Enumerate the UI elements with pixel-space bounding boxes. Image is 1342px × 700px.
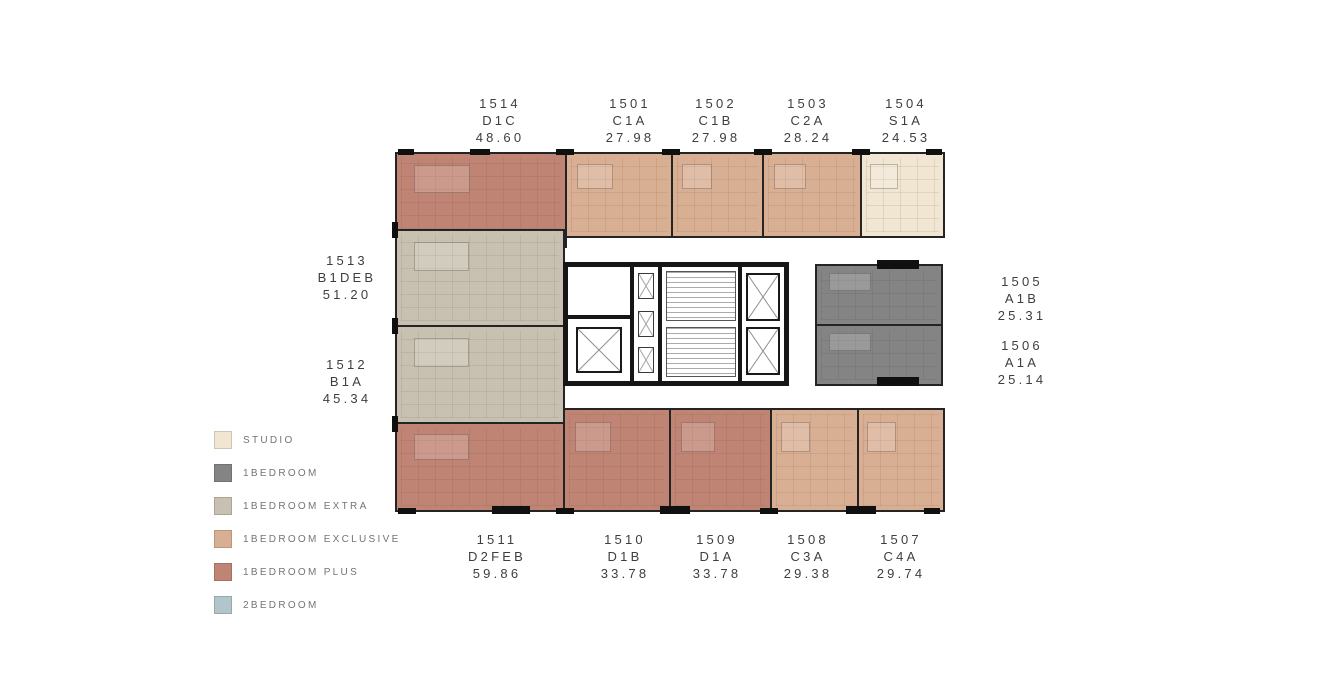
- legend-label: 1BEDROOM: [243, 468, 319, 479]
- stairwell-icon: [666, 271, 736, 321]
- wall-segment: [926, 149, 942, 155]
- unit-type-code: B1DEB: [292, 269, 402, 286]
- unit-type-code: C2A: [753, 112, 863, 129]
- unit-1509: [669, 408, 772, 512]
- unit-type-code: B1A: [292, 373, 402, 390]
- unit-1505: [815, 264, 943, 326]
- unit-type-code: A1B: [967, 290, 1077, 307]
- stairwell-icon: [666, 327, 736, 377]
- legend-item-studio: STUDIO: [214, 431, 401, 449]
- unit-1504: [860, 152, 945, 238]
- wall-segment: [877, 260, 919, 269]
- unit-label-1506: 1506 A1A 25.14: [967, 337, 1077, 388]
- unit-type-code: A1A: [967, 354, 1077, 371]
- unit-number: 1504: [851, 95, 961, 112]
- unit-1502: [671, 152, 764, 238]
- legend-swatch-1bedroom-exclusive: [214, 530, 232, 548]
- unit-type-code: C4A: [846, 548, 956, 565]
- wall-segment: [760, 508, 778, 514]
- unit-1503: [762, 152, 862, 238]
- elevator-shaft-icon: [576, 327, 622, 373]
- legend-label: STUDIO: [243, 435, 295, 446]
- unit-number: 1512: [292, 356, 402, 373]
- unit-label-1513: 1513 B1DEB 51.20: [292, 252, 402, 303]
- wall-segment: [556, 508, 574, 514]
- wall-segment: [852, 149, 870, 155]
- unit-number: 1506: [967, 337, 1077, 354]
- wall-segment: [392, 416, 398, 432]
- legend-swatch-1bedroom: [214, 464, 232, 482]
- unit-number: 1503: [753, 95, 863, 112]
- legend-item-1bedroom: 1BEDROOM: [214, 464, 401, 482]
- core-wall: [568, 315, 630, 319]
- unit-label-1504: 1504 S1A 24.53: [851, 95, 961, 146]
- unit-label-1507: 1507 C4A 29.74: [846, 531, 956, 582]
- wall-segment: [877, 377, 919, 386]
- unit-type-code: D1C: [445, 112, 555, 129]
- unit-area: 45.34: [292, 390, 402, 407]
- unit-area: 59.86: [442, 565, 552, 582]
- legend-item-2bedroom: 2BEDROOM: [214, 596, 401, 614]
- legend-label: 1BEDROOM EXCLUSIVE: [243, 534, 401, 545]
- unit-1512: [395, 325, 565, 424]
- wall-segment: [846, 506, 876, 514]
- service-shaft-icon: [638, 347, 654, 373]
- core-wall: [630, 267, 634, 381]
- unit-number: 1514: [445, 95, 555, 112]
- unit-number: 1507: [846, 531, 956, 548]
- unit-label-1511: 1511 D2FEB 59.86: [442, 531, 552, 582]
- unit-1510: [563, 408, 671, 512]
- legend-item-1bedroom-exclusive: 1BEDROOM EXCLUSIVE: [214, 530, 401, 548]
- legend-swatch-1bedroom-plus: [214, 563, 232, 581]
- core-wall: [658, 267, 662, 381]
- unit-area: 25.14: [967, 371, 1077, 388]
- unit-area: 29.74: [846, 565, 956, 582]
- unit-1511: [395, 422, 565, 512]
- building-core: [563, 262, 789, 386]
- unit-type-code: D2FEB: [442, 548, 552, 565]
- unit-label-1505: 1505 A1B 25.31: [967, 273, 1077, 324]
- legend-label: 1BEDROOM EXTRA: [243, 501, 369, 512]
- wall-segment: [392, 318, 398, 334]
- wall-segment: [660, 506, 690, 514]
- unit-label-1514: 1514 D1C 48.60: [445, 95, 555, 146]
- unit-1513: [395, 229, 565, 327]
- unit-area: 51.20: [292, 286, 402, 303]
- unit-type-legend: STUDIO 1BEDROOM 1BEDROOM EXTRA 1BEDROOM …: [214, 431, 401, 629]
- wall-segment: [492, 506, 530, 514]
- legend-item-1bedroom-extra: 1BEDROOM EXTRA: [214, 497, 401, 515]
- wall-segment: [924, 508, 940, 514]
- legend-item-1bedroom-plus: 1BEDROOM PLUS: [214, 563, 401, 581]
- service-shaft-icon: [638, 273, 654, 299]
- elevator-shaft-icon: [746, 273, 780, 321]
- unit-1508: [770, 408, 859, 512]
- wall-segment: [398, 149, 414, 155]
- floor-plan-page: 1514 D1C 48.60 1501 C1A 27.98 1502 C1B 2…: [0, 0, 1342, 700]
- service-shaft-icon: [638, 311, 654, 337]
- unit-number: 1511: [442, 531, 552, 548]
- unit-area: 25.31: [967, 307, 1077, 324]
- legend-label: 2BEDROOM: [243, 600, 319, 611]
- legend-swatch-1bedroom-extra: [214, 497, 232, 515]
- unit-1507: [857, 408, 945, 512]
- wall-segment: [392, 222, 398, 238]
- legend-swatch-2bedroom: [214, 596, 232, 614]
- wall-segment: [662, 149, 680, 155]
- elevator-shaft-icon: [746, 327, 780, 375]
- legend-swatch-studio: [214, 431, 232, 449]
- wall-segment: [556, 149, 574, 155]
- wall-segment: [398, 508, 416, 514]
- unit-area: 24.53: [851, 129, 961, 146]
- wall-segment: [470, 149, 490, 155]
- unit-label-1512: 1512 B1A 45.34: [292, 356, 402, 407]
- unit-1501: [565, 152, 673, 238]
- legend-label: 1BEDROOM PLUS: [243, 567, 359, 578]
- unit-label-1503: 1503 C2A 28.24: [753, 95, 863, 146]
- unit-area: 48.60: [445, 129, 555, 146]
- unit-area: 28.24: [753, 129, 863, 146]
- core-wall: [738, 267, 742, 381]
- unit-number: 1513: [292, 252, 402, 269]
- unit-number: 1505: [967, 273, 1077, 290]
- wall-segment: [754, 149, 772, 155]
- unit-type-code: S1A: [851, 112, 961, 129]
